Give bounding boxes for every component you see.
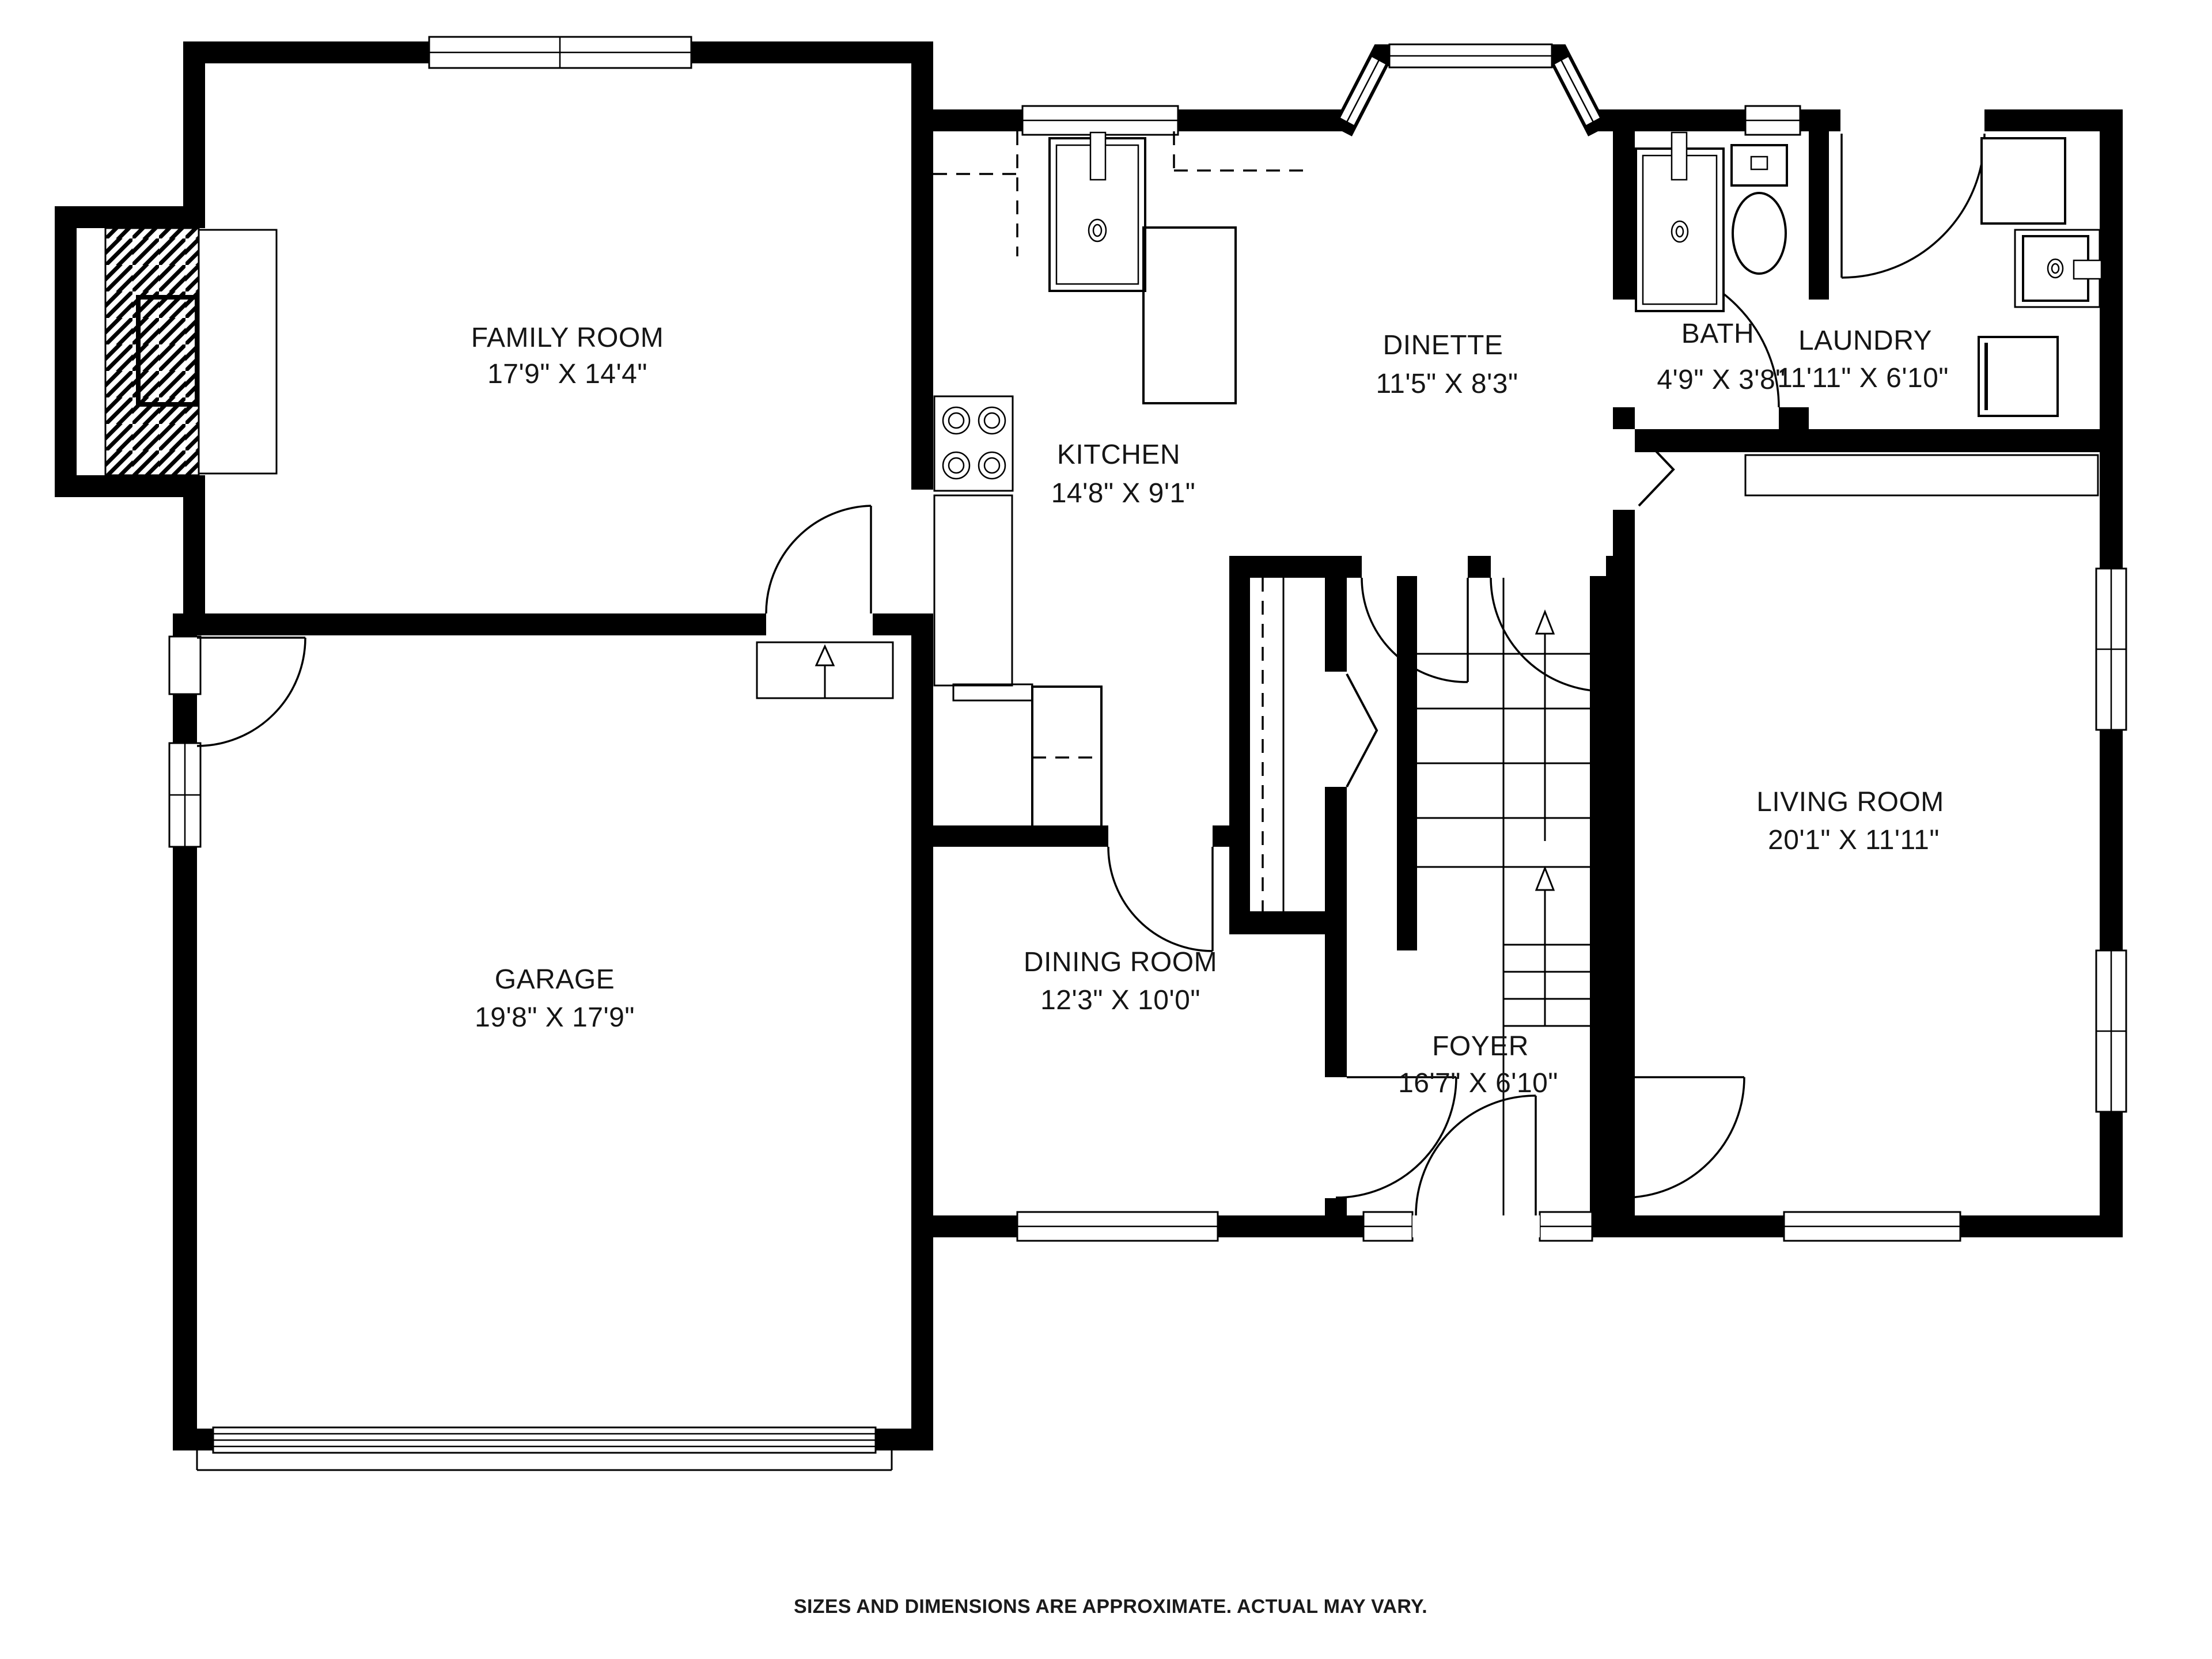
disclaimer-text: SIZES AND DIMENSIONS ARE APPROXIMATE. AC… — [794, 1596, 1427, 1618]
room-label-dining-room: DINING ROOM — [1024, 947, 1217, 978]
room-label-family-room: FAMILY ROOM — [471, 323, 664, 353]
fireplace-icon — [105, 228, 276, 475]
windows — [169, 37, 2126, 1241]
stairs-up-arrow — [1536, 612, 1554, 841]
steps-icon — [757, 642, 893, 698]
room-dims-family-room: 17'9" X 14'4" — [487, 359, 647, 389]
room-dims-laundry: 11'11" X 6'10" — [1777, 363, 1949, 393]
room-label-dinette: DINETTE — [1383, 330, 1503, 361]
window — [2096, 569, 2126, 730]
room-label-laundry: LAUNDRY — [1798, 325, 1932, 356]
dryer-icon — [1979, 337, 2058, 416]
counter — [953, 684, 1032, 700]
window — [2096, 950, 2126, 1112]
laundry-rear-door — [1842, 134, 1984, 278]
window — [1745, 106, 1800, 135]
sidelite-window — [1540, 1212, 1592, 1241]
stair-door — [1491, 578, 1606, 691]
room-dims-bath: 4'9" X 3'8" — [1657, 365, 1785, 395]
bifold-door-icon — [1347, 674, 1377, 787]
room-label-garage: GARAGE — [495, 964, 615, 995]
kitchen-island-icon — [1143, 228, 1236, 403]
foyer-living-door — [1624, 1077, 1744, 1198]
refrigerator-icon — [1032, 687, 1101, 827]
laundry-fixtures — [1979, 138, 2101, 416]
vanity-sink-icon — [1636, 132, 1724, 311]
kitchen-sink-icon — [1050, 132, 1145, 291]
stairs-icon — [1417, 578, 1590, 1215]
room-dims-kitchen: 14'8" X 9'1" — [1051, 478, 1196, 509]
sidelite-window — [1363, 1212, 1412, 1241]
cooktop-icon — [934, 396, 1013, 491]
room-dims-living-room: 20'1" X 11'11" — [1768, 825, 1940, 855]
window — [169, 743, 200, 847]
floor-plan: FAMILY ROOM 17'9" X 14'4" KITCHEN 14'8" … — [0, 0, 2212, 1659]
garage-door-icon — [197, 1427, 892, 1470]
kitchen-dining-door — [1108, 847, 1213, 951]
room-dims-dinette: 11'5" X 8'3" — [1376, 369, 1518, 399]
stairs-up-arrow — [1536, 868, 1554, 1026]
room-dims-foyer: 16'7" X 6'10" — [1398, 1068, 1558, 1099]
front-door — [1412, 1096, 1540, 1237]
family-room-door — [766, 506, 871, 613]
base-cabinet — [934, 495, 1012, 685]
room-dims-garage: 19'8" X 17'9" — [475, 1002, 635, 1033]
room-label-kitchen: KITCHEN — [1057, 440, 1180, 470]
room-label-bath: BATH — [1681, 319, 1754, 349]
utility-sink-icon — [2015, 230, 2101, 307]
washer-icon — [1982, 138, 2065, 224]
closet-shelf-icon — [1745, 455, 2098, 495]
toilet-icon — [1732, 145, 1787, 274]
window — [1017, 1212, 1218, 1241]
room-label-living-room: LIVING ROOM — [1756, 787, 1944, 817]
room-dims-dining-room: 12'3" X 10'0" — [1040, 985, 1200, 1016]
window — [1784, 1212, 1960, 1241]
bath-fixtures — [1636, 132, 1787, 311]
window — [1022, 106, 1178, 135]
closets — [1263, 455, 2098, 911]
window — [429, 37, 691, 68]
room-label-foyer: FOYER — [1432, 1031, 1529, 1062]
